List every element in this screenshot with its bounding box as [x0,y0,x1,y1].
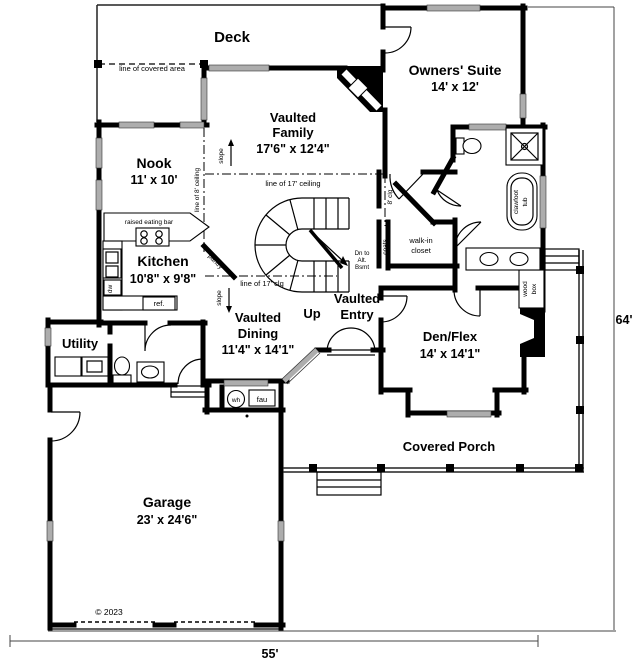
entry-label-2: Entry [340,307,374,322]
staircase [255,198,349,292]
half-bath-sink [137,362,164,382]
up-label: Up [303,306,320,321]
line17-ceiling-label: line of 17' ceiling [265,179,320,188]
slope-family-label: slope [218,148,225,164]
porch-label: Covered Porch [403,439,496,454]
entry-label-1: Vaulted [334,291,380,306]
shower [506,128,543,165]
slope-dining-label: slope [216,290,223,306]
dishwasher: dw [104,280,121,295]
eating-bar-label: raised eating bar [125,219,174,226]
walk-in-label-2: closet [411,246,432,255]
wood-box-label-1: wood [522,281,529,298]
clawfoot-label-1: clawfoot [513,190,520,214]
family-label-2: Family [272,125,314,140]
vanity [466,248,540,270]
kitchen-dims: 10'8" x 9'8" [130,272,197,286]
coats-label: coats [382,238,389,254]
ref-label: ref. [154,299,165,308]
copyright-label: © 2023 [95,607,123,617]
dn-label-2: Alt. [358,257,367,264]
deck-label: Deck [214,29,251,46]
utility-label: Utility [62,336,99,351]
dn-label-3: Bsmt [355,264,369,271]
wood-box: wood box [519,270,544,308]
dw-label: dw [107,285,114,294]
garage-step [171,386,207,397]
garage-dims: 23' x 24'6" [137,513,198,527]
wood-box-label-2: box [531,283,538,294]
stove [136,228,169,246]
floor-plan: wood box [0,0,636,664]
clawfoot-tub: clawfoot tub [507,173,537,230]
den-dims: 14' x 14'1" [420,347,481,361]
fau-label: fau [257,395,267,404]
garage-label: Garage [143,494,191,510]
width-dimension: 55' [262,647,279,661]
walk-in-label-1: walk-in [408,236,432,245]
owners-suite-dims: 14' x 12' [431,80,479,94]
owners-toilet [456,138,481,154]
dn-label-1: Dn to [355,250,370,257]
den-label: Den/Flex [423,329,478,344]
height-dimension: 64' [616,313,633,327]
line8-ceiling-label: line of 8' ceiling [194,168,201,213]
dining-label-1: Vaulted [235,310,281,325]
slope-arrows [226,139,234,313]
clg8-label: 8' clg [387,189,394,204]
family-label-1: Vaulted [270,110,316,125]
owners-suite-label: Owners' Suite [409,62,502,78]
wh-label: wh [231,397,241,404]
kitchen-label: Kitchen [137,253,188,269]
family-fireplace [337,66,383,112]
clawfoot-label-2: tub [522,197,529,206]
dining-label-2: Dining [238,326,278,341]
covered-area-label: line of covered area [119,64,186,73]
dining-dims: 11'4" x 14'1" [222,343,295,357]
washer-dryer [55,357,108,376]
half-bath-toilet [113,357,131,383]
furnace: fau [246,390,276,418]
nook-label: Nook [137,155,172,171]
line17-clg-label: line of 17' clg [240,279,284,288]
floor-plan-drawing: wood box [0,0,636,664]
water-heater: wh [228,391,245,408]
kitchen-sink [103,249,121,278]
nook-dims: 11' x 10' [131,173,178,187]
walls [48,6,545,628]
family-dims: 17'6" x 12'4" [256,142,329,156]
